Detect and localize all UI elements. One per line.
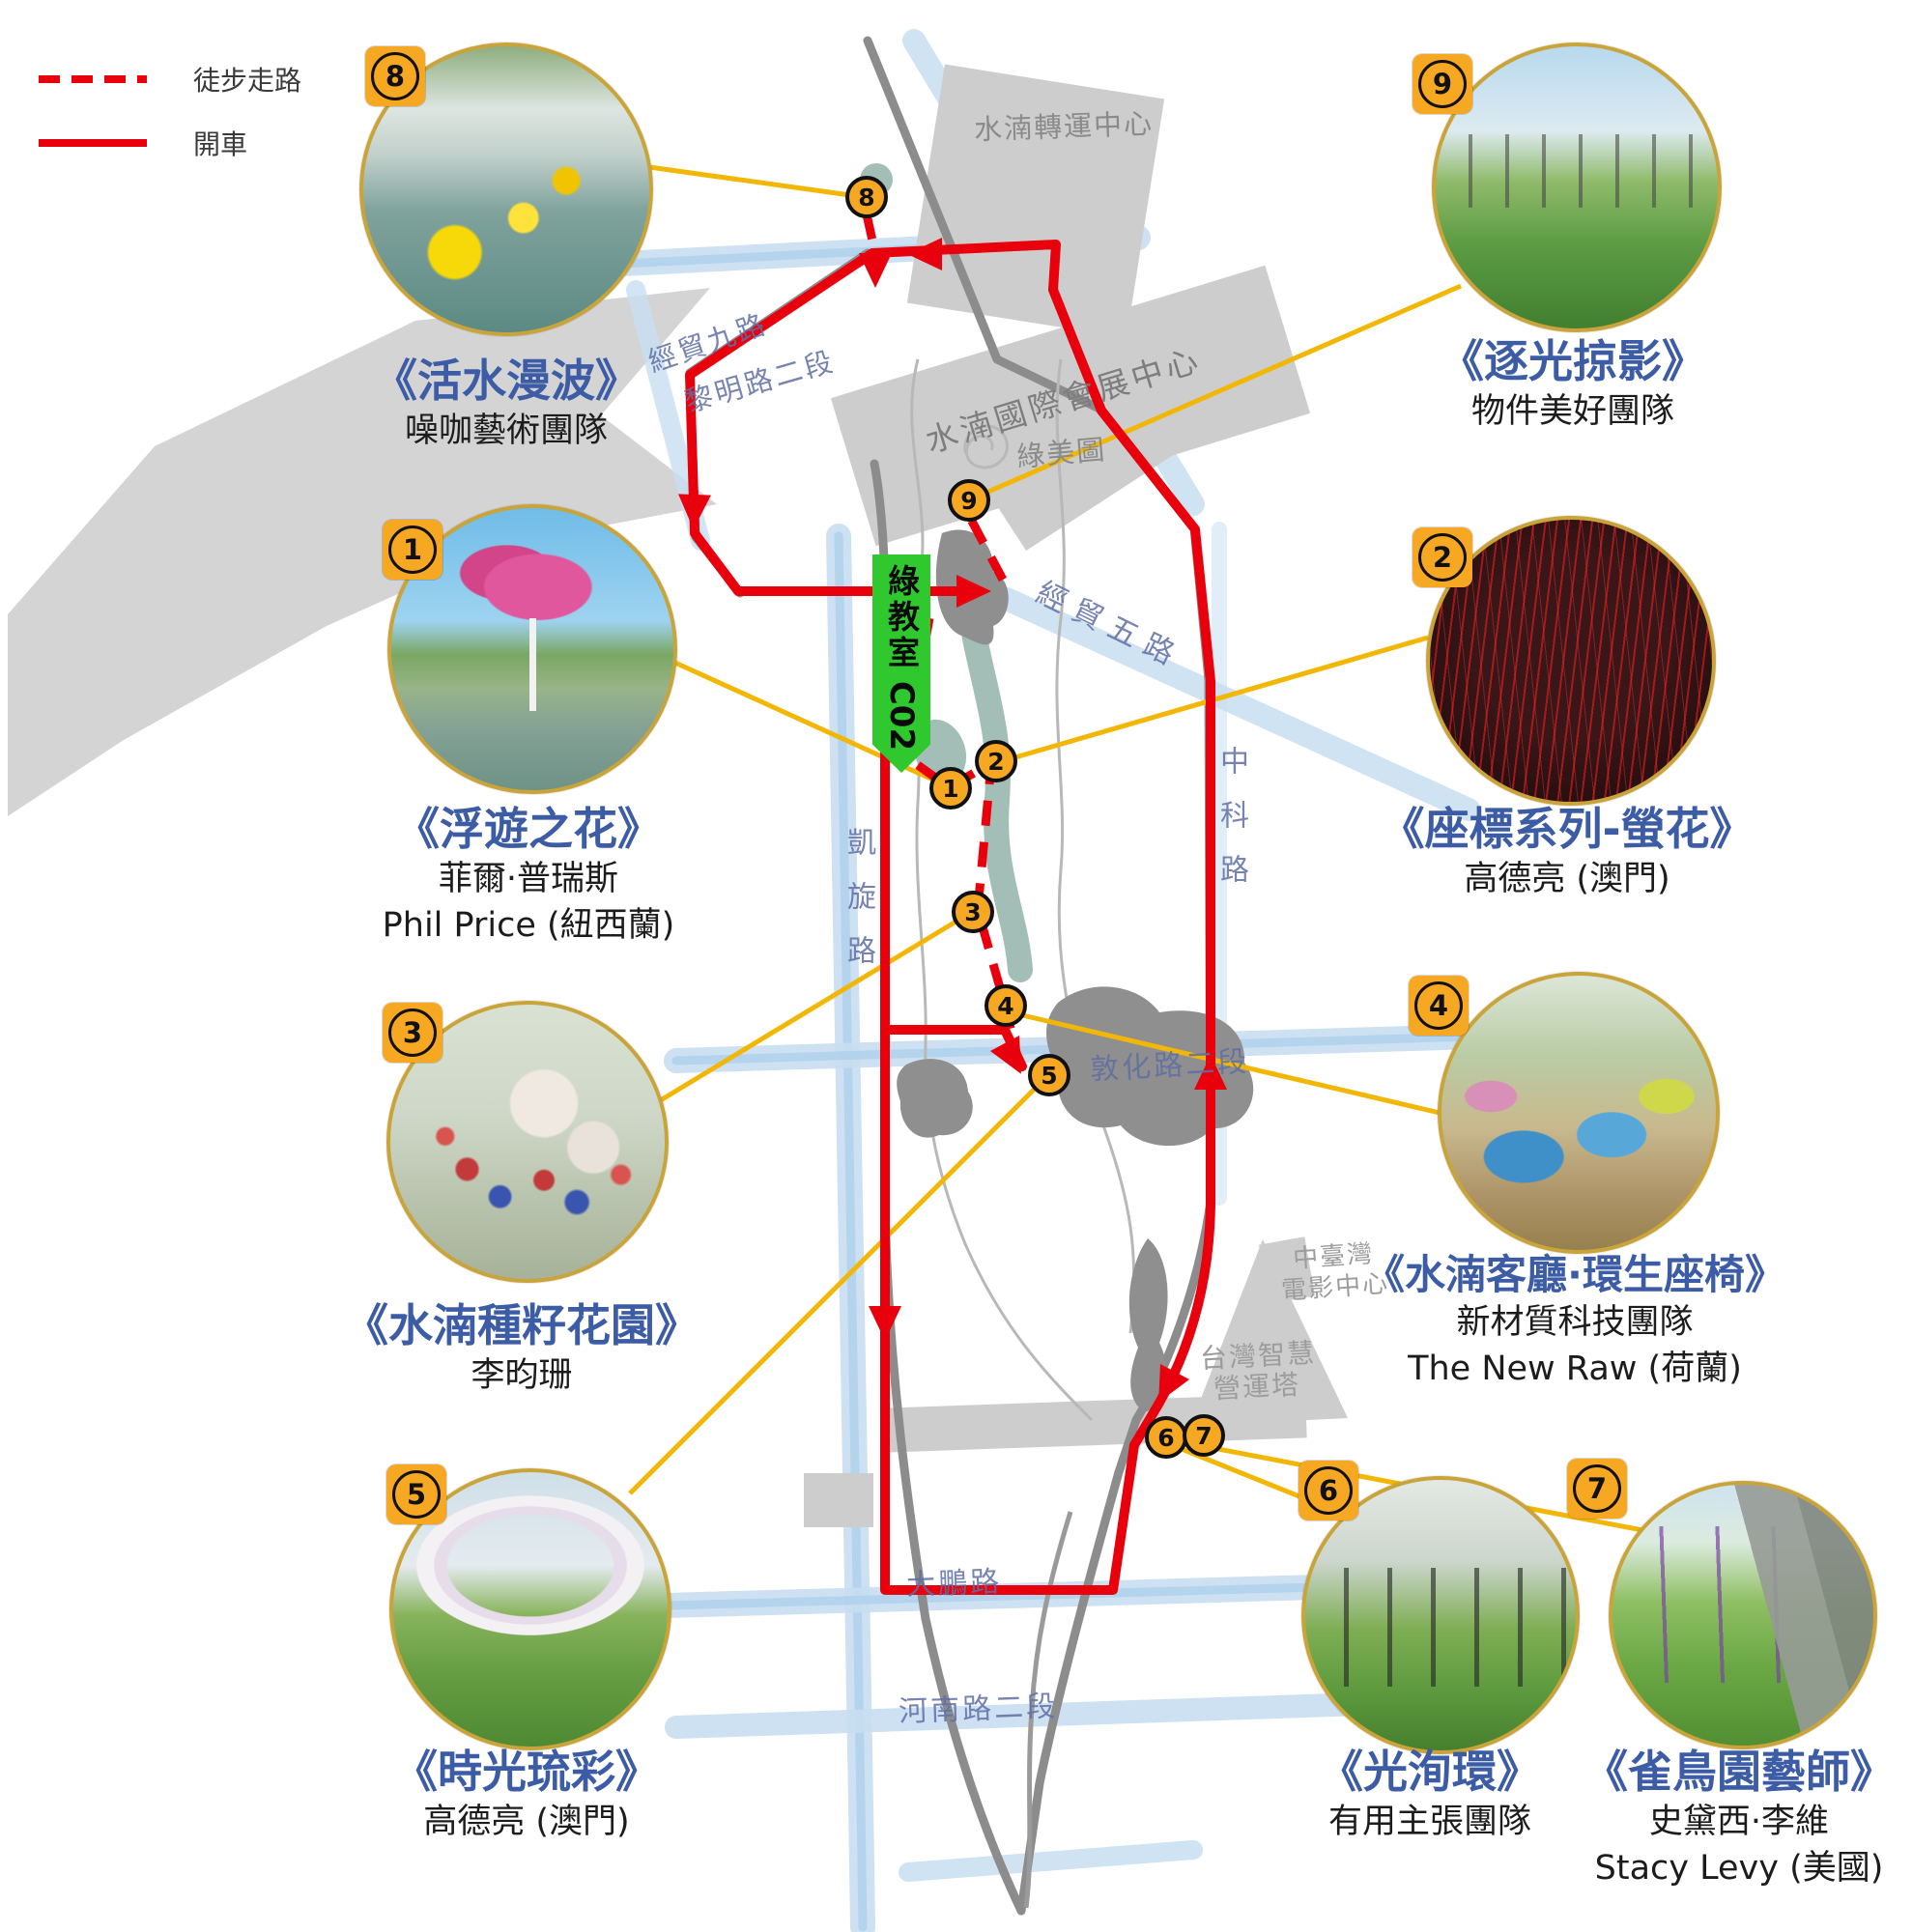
caption-artwork-2: 《座標系列-螢花》 高德亮 (澳門) [1316,804,1818,901]
map-marker-6: 6 [1145,1416,1187,1459]
photo-artwork-9 [1432,43,1722,332]
artwork-4-artist-en: The New Raw (荷蘭) [1322,1349,1828,1391]
legend-drive-row: 開車 [39,124,247,162]
map-marker-1: 1 [929,767,972,810]
green-classroom-code: C02 [882,681,921,751]
artwork-1-title: 《浮遊之花》 [277,804,780,855]
legend-walk-label: 徒步走路 [193,60,301,99]
artwork-4-artist: 新材質科技團隊 [1322,1302,1828,1345]
label-dapeng-road: 大鵬路 [905,1557,1002,1603]
artwork-7-title: 《雀鳥園藝師》 [1517,1747,1912,1798]
artwork-1-artist: 菲爾·普瑞斯 [277,859,780,901]
map-marker-4: 4 [985,984,1027,1027]
badge-artwork-4: 4 [1409,976,1469,1036]
badge-artwork-8: 8 [365,46,425,106]
legend-drive-label: 開車 [193,124,247,162]
badge-number-2: 2 [1418,533,1467,582]
badge-artwork-2: 2 [1413,527,1472,587]
artwork-2-artist: 高德亮 (澳門) [1316,859,1818,901]
badge-artwork-7: 7 [1567,1459,1627,1519]
caption-artwork-1: 《浮遊之花》 菲爾·普瑞斯 Phil Price (紐西蘭) [277,804,780,947]
photo-artwork-4 [1438,972,1720,1254]
legend-drive-line-sample [39,139,147,147]
artwork-2-title: 《座標系列-螢花》 [1316,804,1818,855]
artwork-8-title: 《活水漫波》 [255,355,757,407]
badge-number-7: 7 [1573,1464,1621,1513]
caption-artwork-8: 《活水漫波》 噪咖藝術團隊 [255,355,757,453]
artwork-3-artist: 李昀珊 [271,1355,773,1398]
caption-artwork-5: 《時光琉彩》 高德亮 (澳門) [275,1747,778,1844]
legend-walk-row: 徒步走路 [39,60,301,99]
green-classroom-label: 綠教室 [886,564,918,671]
badge-number-3: 3 [388,1009,437,1057]
badge-number-6: 6 [1304,1466,1353,1515]
artwork-5-artist: 高德亮 (澳門) [275,1802,778,1844]
caption-artwork-4: 《水湳客廳·環生座椅》 新材質科技團隊 The New Raw (荷蘭) [1322,1252,1828,1391]
map-marker-9: 9 [948,479,990,522]
badge-number-9: 9 [1418,60,1467,108]
label-green-museum: 綠美圖 [1014,427,1107,475]
art-route-map-poster: 徒步走路 開車 水湳轉運中心 經貿九路 黎明路二段 水湳國際會展中心 綠美圖 經… [0,0,1912,1932]
artwork-7-artist-en: Stacy Levy (美國) [1517,1848,1912,1890]
badge-artwork-6: 6 [1298,1461,1358,1520]
artwork-7-artist: 史黛西·李維 [1517,1802,1912,1844]
artwork-1-artist-en: Phil Price (紐西蘭) [277,905,780,948]
green-classroom-banner: 綠教室 C02 [872,554,930,773]
map-marker-5: 5 [1028,1054,1070,1096]
caption-artwork-7: 《雀鳥園藝師》 史黛西·李維 Stacy Levy (美國) [1517,1747,1912,1889]
map-marker-7: 7 [1183,1414,1225,1457]
label-smart-tower-line2: 營運塔 [1213,1364,1301,1407]
caption-artwork-3: 《水湳種籽花園》 李昀珊 [271,1300,773,1398]
artwork-4-title: 《水湳客廳·環生座椅》 [1322,1252,1828,1298]
badge-artwork-9: 9 [1413,54,1472,114]
label-kaixuan-road: 凱旋路 [837,827,879,989]
map-marker-3: 3 [952,891,994,933]
artwork-9-title: 《逐光掠影》 [1322,336,1824,387]
badge-artwork-1: 1 [383,520,442,580]
photo-artwork-7 [1609,1481,1877,1749]
legend-walk-line-sample [39,75,147,83]
badge-number-8: 8 [371,52,419,100]
artwork-5-title: 《時光琉彩》 [275,1747,778,1798]
label-transit-center: 水湳轉運中心 [973,101,1154,148]
badge-artwork-3: 3 [383,1003,442,1063]
artwork-3-title: 《水湳種籽花園》 [271,1300,773,1351]
label-zhongke-road: 中科路 [1210,746,1252,908]
badge-number-5: 5 [392,1470,441,1519]
artwork-9-artist: 物件美好團隊 [1322,391,1824,434]
caption-artwork-9: 《逐光掠影》 物件美好團隊 [1322,336,1824,434]
label-henan2-road: 河南路二段 [898,1682,1058,1730]
badge-number-4: 4 [1414,981,1463,1030]
artwork-8-artist: 噪咖藝術團隊 [255,411,757,453]
badge-artwork-5: 5 [386,1464,446,1524]
label-dunhua2-road: 敦化路二段 [1089,1037,1250,1089]
map-marker-8: 8 [845,176,888,218]
map-marker-2: 2 [975,740,1017,782]
badge-number-1: 1 [388,526,437,574]
